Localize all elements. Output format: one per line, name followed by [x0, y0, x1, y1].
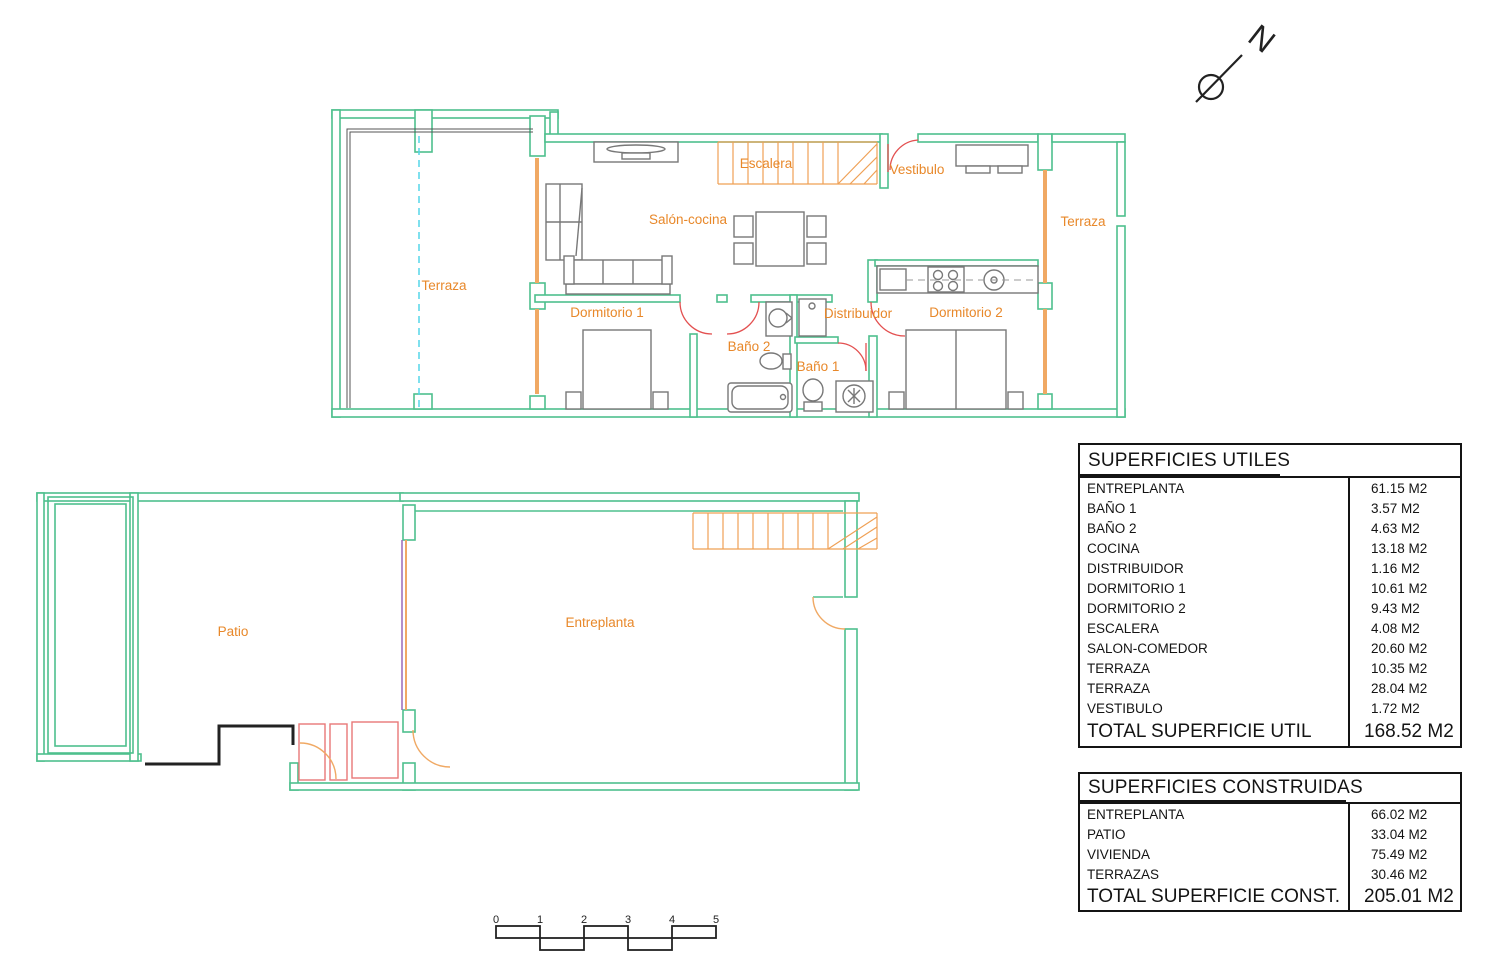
table-row: DISTRIBUIDOR1.16 M2	[1080, 558, 1460, 578]
table-superficies-construidas: SUPERFICIES CONSTRUIDAS ENTREPLANTA66.02…	[1078, 772, 1462, 912]
armchair-icon	[546, 184, 582, 260]
dining-table-icon	[734, 212, 826, 266]
lower-floor-plan: Patio Entreplanta	[30, 485, 900, 805]
scale-tick-1: 1	[537, 914, 543, 926]
table-row: DORMITORIO 29.43 M2	[1080, 598, 1460, 618]
table-total-row: TOTAL SUPERFICIE UTIL168.52 M2	[1080, 718, 1460, 746]
table-construidas-title: SUPERFICIES CONSTRUIDAS	[1080, 774, 1460, 802]
upper-floor-plan: Terraza Salón-cocina Escalera Vestibulo …	[330, 108, 1130, 428]
table-row: TERRAZA10.35 M2	[1080, 658, 1460, 678]
table-row: TERRAZAS30.46 M2	[1080, 864, 1460, 884]
header-rule	[1080, 474, 1280, 476]
north-label: N	[1242, 17, 1282, 60]
row-label: VESTIBULO	[1080, 701, 1348, 716]
scale-tick-5: 5	[713, 914, 719, 926]
row-value: 33.04 M2	[1348, 824, 1460, 844]
table-superficies-utiles: SUPERFICIES UTILES ENTREPLANTA61.15 M2 B…	[1078, 443, 1462, 748]
row-value: 4.08 M2	[1348, 618, 1460, 638]
room-label-bano-2: Baño 2	[728, 339, 771, 354]
lower-windows	[402, 540, 406, 710]
kitchen-counter-icon	[877, 266, 1038, 293]
table-row: BAÑO 13.57 M2	[1080, 498, 1460, 518]
scale-tick-2: 2	[581, 914, 587, 926]
row-value: 66.02 M2	[1348, 804, 1460, 824]
table-row: VESTIBULO1.72 M2	[1080, 698, 1460, 718]
table-row: ESCALERA4.08 M2	[1080, 618, 1460, 638]
row-label: BAÑO 1	[1080, 501, 1348, 516]
row-label: SALON-COMEDOR	[1080, 641, 1348, 656]
row-label: TERRAZA	[1080, 661, 1348, 676]
row-value: 1.16 M2	[1348, 558, 1460, 578]
scale-tick-4: 4	[669, 914, 675, 926]
scale-tick-0: 0	[493, 914, 499, 926]
room-label-patio: Patio	[218, 624, 249, 639]
table-row: ENTREPLANTA66.02 M2	[1080, 804, 1460, 824]
header-rule	[1080, 800, 1346, 802]
table-row: TERRAZA28.04 M2	[1080, 678, 1460, 698]
total-value: 205.01 M2	[1348, 884, 1460, 910]
table-utiles-title: SUPERFICIES UTILES	[1080, 445, 1460, 476]
row-value: 61.15 M2	[1348, 478, 1460, 498]
row-label: BAÑO 2	[1080, 521, 1348, 536]
room-label-dormitorio-2: Dormitorio 2	[929, 305, 1003, 320]
north-arrow-icon: N	[1180, 15, 1310, 125]
row-label: DISTRIBUIDOR	[1080, 561, 1348, 576]
room-label-terraza-right: Terraza	[1060, 214, 1106, 229]
floorplan-sheet: N	[0, 0, 1500, 980]
row-label: TERRAZA	[1080, 681, 1348, 696]
row-label: VIVIENDA	[1080, 847, 1348, 862]
row-label: PATIO	[1080, 827, 1348, 842]
total-label: TOTAL SUPERFICIE UTIL	[1080, 721, 1348, 743]
lower-walls	[37, 493, 859, 790]
patio-storage-icon	[299, 722, 398, 780]
bed-1-icon	[566, 330, 668, 409]
total-label: TOTAL SUPERFICIE CONST.	[1080, 886, 1348, 908]
bed-2-icon	[889, 330, 1023, 409]
row-value: 4.63 M2	[1348, 518, 1460, 538]
table-row: DORMITORIO 110.61 M2	[1080, 578, 1460, 598]
row-value: 30.46 M2	[1348, 864, 1460, 884]
room-label-distribuidor: Distribuidor	[824, 306, 893, 321]
table-row: PATIO33.04 M2	[1080, 824, 1460, 844]
row-label: ENTREPLANTA	[1080, 807, 1348, 822]
room-label-dormitorio-1: Dormitorio 1	[570, 305, 644, 320]
room-label-vestibulo: Vestibulo	[890, 162, 945, 177]
row-value: 20.60 M2	[1348, 638, 1460, 658]
row-label: ESCALERA	[1080, 621, 1348, 636]
lower-room-labels: Patio Entreplanta	[218, 615, 635, 639]
patio-black-wall	[145, 726, 293, 764]
row-value: 75.49 M2	[1348, 844, 1460, 864]
table-row: BAÑO 24.63 M2	[1080, 518, 1460, 538]
row-label: COCINA	[1080, 541, 1348, 556]
table-utiles-body: ENTREPLANTA61.15 M2 BAÑO 13.57 M2 BAÑO 2…	[1080, 476, 1460, 746]
table-row: SALON-COMEDOR20.60 M2	[1080, 638, 1460, 658]
row-value: 28.04 M2	[1348, 678, 1460, 698]
row-value: 3.57 M2	[1348, 498, 1460, 518]
total-value: 168.52 M2	[1348, 718, 1460, 746]
row-label: DORMITORIO 1	[1080, 581, 1348, 596]
row-label: ENTREPLANTA	[1080, 481, 1348, 496]
scale-tick-3: 3	[625, 914, 631, 926]
room-label-salon-cocina: Salón-cocina	[649, 212, 728, 227]
row-value: 1.72 M2	[1348, 698, 1460, 718]
row-value: 9.43 M2	[1348, 598, 1460, 618]
tv-cabinet-icon	[594, 142, 678, 162]
table-construidas-title-text: SUPERFICIES CONSTRUIDAS	[1088, 777, 1363, 799]
table-construidas-body: ENTREPLANTA66.02 M2 PATIO33.04 M2 VIVIEN…	[1080, 802, 1460, 910]
table-row: VIVIENDA75.49 M2	[1080, 844, 1460, 864]
bath2-fixtures-icon	[728, 302, 792, 412]
room-label-entreplanta: Entreplanta	[565, 615, 635, 630]
hall-cabinet-icon	[956, 145, 1028, 173]
table-utiles-title-text: SUPERFICIES UTILES	[1088, 450, 1290, 472]
table-total-row: TOTAL SUPERFICIE CONST.205.01 M2	[1080, 884, 1460, 910]
table-row: ENTREPLANTA61.15 M2	[1080, 478, 1460, 498]
row-label: DORMITORIO 2	[1080, 601, 1348, 616]
sofa-icon	[564, 256, 672, 294]
terrace-railing	[347, 129, 533, 408]
row-value: 10.35 M2	[1348, 658, 1460, 678]
row-value: 10.61 M2	[1348, 578, 1460, 598]
room-label-terraza-left: Terraza	[421, 278, 467, 293]
room-label-escalera: Escalera	[740, 156, 793, 171]
scale-bar: 0 1 2 3 4 5	[488, 912, 728, 960]
room-label-bano-1: Baño 1	[797, 359, 840, 374]
row-value: 13.18 M2	[1348, 538, 1460, 558]
table-row: COCINA13.18 M2	[1080, 538, 1460, 558]
row-label: TERRAZAS	[1080, 867, 1348, 882]
